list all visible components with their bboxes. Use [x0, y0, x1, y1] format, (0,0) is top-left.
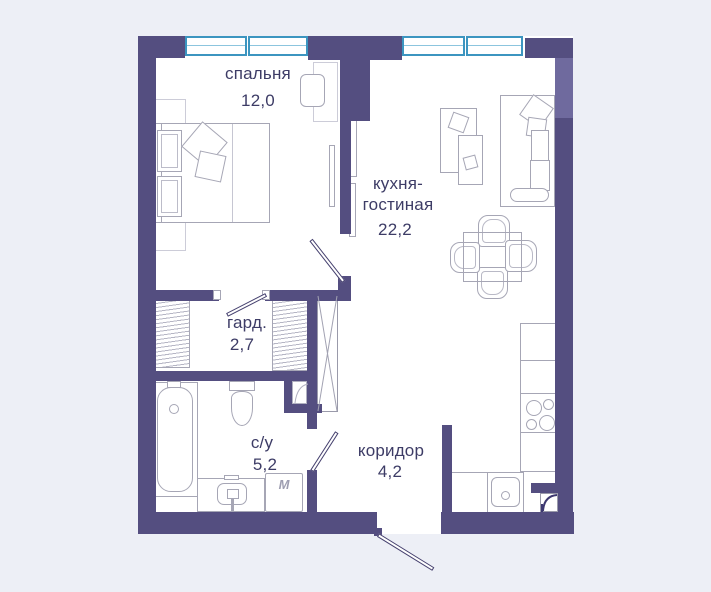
bathtub-inner	[157, 387, 193, 492]
sofa-seat	[531, 130, 549, 161]
wall-niche-bottom	[284, 404, 322, 413]
room-area-bathroom: 5,2	[205, 455, 325, 475]
bath-faucet	[167, 381, 181, 388]
burner	[526, 400, 542, 416]
window-bedroom	[185, 36, 308, 56]
ventilation-shaft	[317, 295, 338, 412]
bedroom-tv	[329, 145, 335, 207]
room-label-bedroom: спальня	[198, 64, 318, 84]
floor-plan: M спальня 12,0 кухня- гостиная 22,2	[0, 0, 711, 592]
room-label-bathroom: с/у	[202, 433, 322, 453]
kitchen-cabinet	[520, 360, 557, 394]
bed-cushion	[194, 150, 226, 182]
room-label-kitchen-line2: гостиная	[338, 195, 458, 215]
bed-blanket-line	[232, 124, 233, 222]
sink-drain	[501, 491, 510, 500]
living-tv-panel	[350, 118, 357, 177]
vanity-stem	[231, 499, 234, 512]
wall-top-left-corner	[138, 36, 185, 58]
wall-right	[555, 56, 573, 534]
room-label-kitchen-line1: кухня-	[338, 174, 458, 194]
sofa-armrest	[510, 188, 549, 202]
kitchen-counter	[520, 432, 557, 472]
burner	[543, 399, 554, 410]
room-area-bedroom: 12,0	[198, 91, 318, 111]
wall-wardrobe-top-left	[150, 290, 219, 301]
wall-left	[138, 56, 156, 513]
wall-top-middle	[308, 36, 402, 60]
room-area-wardrobe: 2,7	[182, 335, 302, 355]
toilet-tank	[229, 381, 255, 391]
kitchen-counter	[451, 472, 488, 513]
room-label-corridor: коридор	[331, 441, 451, 461]
wall-kitchen-stub	[531, 483, 558, 493]
wall-bathroom-corridor-lower	[307, 470, 317, 513]
bath-drain	[169, 404, 179, 414]
kitchen-niche	[540, 493, 558, 512]
wall-wardrobe-right	[307, 301, 317, 413]
niche-panel	[292, 381, 307, 404]
dining-table	[463, 232, 522, 282]
room-label-wardrobe: гард.	[187, 313, 307, 333]
room-area-corridor: 4,2	[330, 462, 450, 482]
toilet-bowl	[231, 391, 253, 426]
bed-pillow	[157, 130, 182, 172]
sofa-seat	[530, 160, 550, 191]
window-living	[402, 36, 523, 56]
door-jamb	[213, 290, 221, 300]
kitchen-cabinet	[520, 323, 557, 361]
vanity-tab	[224, 475, 239, 480]
wall-wardrobe-top-right	[265, 290, 351, 301]
wall-top-right-corner	[525, 38, 573, 58]
window-mullion	[245, 36, 250, 56]
wall-bathroom-corridor-upper	[307, 413, 317, 429]
vanity-sink-inner	[227, 489, 239, 499]
burner	[539, 415, 555, 431]
wall-right-light-segment	[555, 56, 573, 118]
bed-pillow	[157, 176, 182, 217]
wardrobe-rail-left	[155, 299, 190, 368]
window-mullion	[463, 36, 468, 56]
entry-door-leaf	[377, 533, 434, 571]
washing-machine-symbol: M	[271, 477, 297, 492]
room-area-kitchen: 22,2	[335, 220, 455, 240]
wall-partition-top	[340, 58, 370, 121]
wall-bottom-left	[138, 512, 377, 534]
burner	[526, 419, 537, 430]
